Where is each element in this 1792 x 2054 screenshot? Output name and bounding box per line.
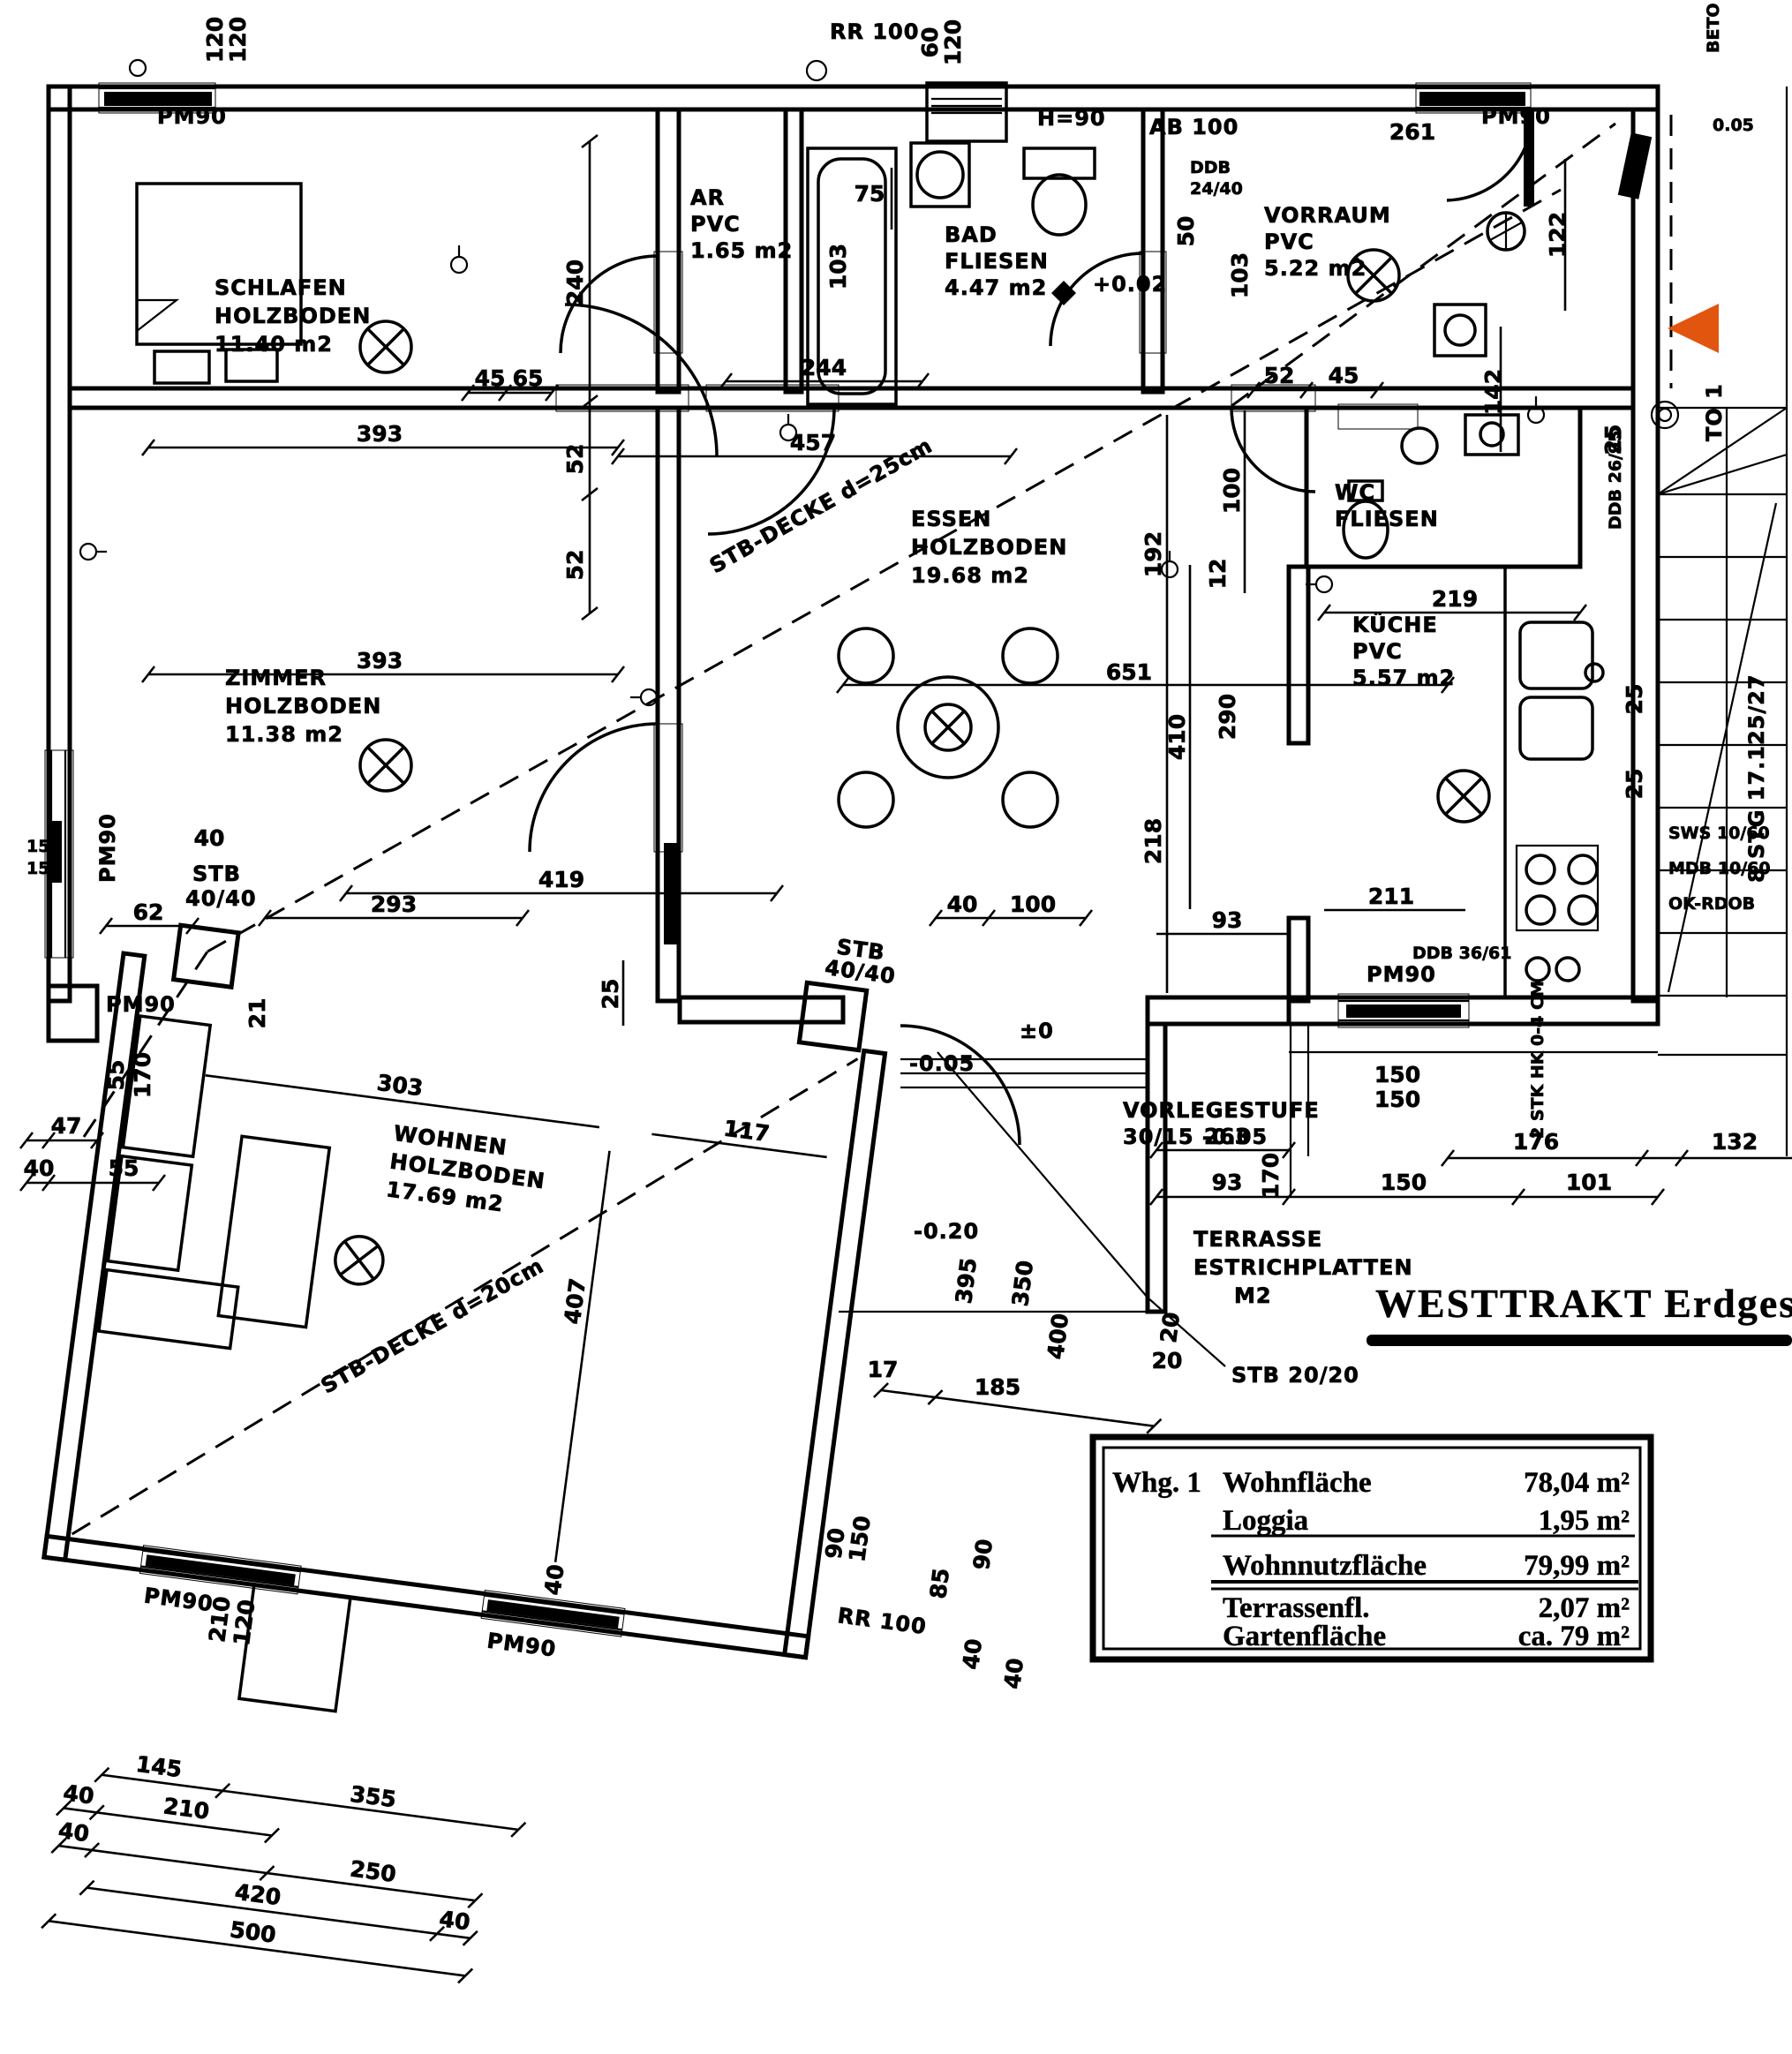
fixtures-kitchen [1505,567,1603,996]
dim-text: 500 [229,1916,278,1948]
sofa [99,1270,238,1349]
dim-text: 101 [1566,1170,1612,1195]
dim-text: 244 [801,355,847,380]
concrete-column [174,925,239,987]
room-area: M2 [1234,1283,1272,1308]
room-area: 4.47 m2 [945,275,1047,300]
dim-text: 410 [1164,714,1190,760]
hall-door-arc [565,305,717,456]
level-note: -0.20 [914,1219,979,1244]
dim-text: 25 [1622,769,1647,800]
step-note: 30/15 -0.05 [1123,1125,1268,1149]
level-note: ±0 [1020,1019,1054,1043]
nightstand [154,351,209,383]
table-row-label: Loggia [1223,1505,1308,1537]
dim-text: 150 [1381,1170,1427,1195]
dim-text: 407 [560,1276,591,1326]
dim-text: 52 [562,550,588,581]
beam-note: 24/40 [1190,179,1243,199]
dim-text: 192 [1141,531,1166,577]
title-block: WESTTRAKT Erdgescho [1367,1281,1792,1346]
dim-text: 103 [1227,252,1253,298]
dim-text: 93 [1212,1170,1243,1195]
dim-text: 40 [438,1906,471,1935]
dim-text: 420 [233,1879,282,1911]
dim-text: 651 [1106,659,1152,685]
light-icon [360,321,411,372]
chair [1003,628,1058,683]
room-floor: PVC [1264,229,1314,254]
dim-text: 350 [1007,1259,1038,1307]
pipe-note: RR 100 [830,19,919,44]
dim-text: 150 [844,1515,876,1564]
dim-text: 261 [1389,119,1435,145]
stair-note: 8 STG 17.125/27 [1744,673,1769,883]
height-note: H=90 [1037,106,1106,131]
floor-plan-drawing: WOHNEN HOLZBODEN 17.69 m2 STB-DECKE d=20… [0,0,1792,2054]
dim-text: 120 [940,19,966,65]
dim-text: 55 [103,1060,129,1091]
room-area: 19.68 m2 [911,563,1029,588]
duct-note: AB 100 [1149,115,1239,139]
table-row-value: 79,99 m² [1524,1550,1630,1582]
dim-text: 250 [349,1856,398,1888]
beam-note: DDB 36/61 [1412,944,1511,963]
dim-text: 150 [26,837,62,856]
window-note: PM90 [1481,104,1551,129]
dim-text: 395 [951,1256,982,1305]
dim-text: 60 [917,27,943,58]
dim-text: 400 [1043,1312,1073,1360]
door-leaf [1618,132,1652,199]
room-area: 5.57 m2 [1352,666,1455,690]
column-note: STB 20/20 [1231,1363,1359,1388]
beam-note: DDB 26/95 [1606,431,1625,530]
dim-text: 103 [825,244,851,290]
rain-pipe-icon [807,61,826,80]
room-floor: HOLZBODEN [911,535,1067,560]
coffee-table [218,1136,329,1327]
interior-walls [70,109,1633,1001]
table-unit: Whg. 1 [1112,1467,1201,1499]
window-note: PM90 [1367,962,1436,987]
dim-text: 45 [475,365,506,391]
light-icon [1438,771,1489,822]
sink-basin [1520,622,1592,688]
dim-text: 150 [26,859,62,878]
floor-plan-sheet: WOHNEN HOLZBODEN 17.69 m2 STB-DECKE d=20… [0,0,1792,2054]
dimension-chains-bottom: 145 355 40 210 40 250 420 40 500 [41,1742,528,1989]
wc-bowl [1033,175,1086,235]
room-floor: HOLZBODEN [225,694,381,719]
dim-text: 75 [855,181,885,207]
room-area: 5.22 m2 [1264,256,1367,281]
dim-text: 45 [1329,363,1359,388]
table-row-label: Gartenfläche [1223,1621,1386,1652]
level-note: -0.05 [909,1051,975,1076]
pipe-note: RR 100 [836,1603,928,1639]
window-note: PM90 [142,1583,215,1616]
dim-text: 290 [1215,694,1240,740]
dim-text: 150 [1374,1087,1420,1112]
room-label: ESSEN [911,507,991,531]
dim-text: 25 [1622,684,1647,715]
washing-machine [1434,305,1486,356]
table-row-label: Wohnnutzfläche [1223,1550,1427,1582]
dim-text: 40 [62,1779,95,1809]
dim-text: 145 [134,1751,184,1783]
sink-basin [1520,697,1592,759]
dim-text: 62 [133,899,164,925]
window-note: PM90 [95,813,120,883]
light-icon [360,740,411,791]
chimney [927,83,1006,141]
faucet-icon [1585,664,1603,681]
dim-text: 122 [1545,212,1570,258]
dim-text: 170 [130,1052,155,1098]
dim-text: 65 [513,365,544,391]
zimmer-door-arc [530,724,658,852]
level-note: +0.02 [1093,272,1167,297]
dim-text: 100 [1219,468,1245,514]
table-row-value: 2,07 m² [1539,1592,1630,1624]
dimension-lines [20,135,1792,1435]
dim-text: 211 [1368,884,1414,909]
room-label: TERRASSE [1193,1227,1322,1252]
dim-text: 40 [56,1817,90,1847]
room-area: 11.38 m2 [225,722,343,747]
dim-text: 120 [229,1598,260,1647]
dim-text: 12 [1205,559,1231,590]
legend-table: Whg. 1 Wohnfläche 78,04 m² Loggia 1,95 m… [1093,1437,1651,1659]
dim-text: 457 [790,430,836,455]
dim-text: 393 [357,648,403,673]
table-row-label: Wohnfläche [1223,1467,1372,1499]
washbasin-bowl [917,152,963,198]
column-note: 40/40 [824,955,898,989]
room-floor: PVC [690,212,741,237]
chair [839,772,893,827]
light-icon [333,1234,387,1288]
dim-text: 90 [968,1538,998,1571]
column-note: STB [192,861,241,886]
dim-text: 40 [999,1657,1028,1690]
chair [839,628,893,683]
concrete-column [799,982,866,1050]
dim-text: 40 [194,825,225,851]
table-row-value: 1,95 m² [1539,1505,1630,1537]
column-note: 40/40 [185,886,257,911]
dim-text: 17 [868,1357,899,1382]
dim-text: 47 [51,1113,82,1139]
material-note: BETO [1704,3,1723,53]
light-icon [925,704,971,750]
dim-text: 21 [245,998,270,1029]
dim-text: 185 [975,1374,1020,1400]
dim-text: 393 [357,421,403,447]
doors [530,109,1652,1145]
dim-text: 52 [562,444,588,475]
dim-text: 40 [947,892,978,917]
dim-text: 117 [722,1116,772,1147]
step-note: VORLEGESTUFE [1123,1098,1320,1123]
dim-text: 303 [375,1070,425,1102]
dim-text: 20 [1152,1348,1183,1373]
room-label: WC [1335,480,1375,505]
room-label: KÜCHE [1352,611,1438,637]
room-label: AR [690,185,725,210]
dim-text: 120 [202,17,228,63]
dim-text: 20 [1156,1311,1185,1344]
dim-text: 40 [958,1637,987,1671]
room-area: 1.65 m2 [690,238,793,263]
table-row-label: Terrassenfl. [1223,1592,1370,1624]
window-note: PM90 [486,1629,558,1662]
table-row-value: ca. 79 m² [1518,1621,1630,1652]
title-underline [1367,1335,1792,1346]
dim-text: 25 [598,979,623,1010]
dim-text: 218 [1141,818,1166,864]
dim-text: 93 [1212,907,1243,933]
orange-arrow-marker [1668,304,1719,353]
sill-note: OK-RDOB [1668,894,1755,914]
dim-text: 240 [562,260,588,305]
room-area: 11.40 m2 [215,332,333,357]
room-label: SCHLAFEN [215,275,347,300]
radiator-note: 2 STK HK 0-4 CM [1528,981,1547,1139]
dim-text: 419 [538,867,584,892]
dim-text: 132 [1712,1129,1758,1155]
room-label: BAD [945,222,998,247]
table-row-value: 78,04 m² [1524,1467,1630,1499]
room-label: VORRAUM [1264,203,1391,228]
sill-note: SWS 10/60 [1668,824,1770,843]
dim-text: 150 [1374,1062,1420,1087]
corner-basin [1465,415,1518,455]
dim-text: 100 [1010,892,1056,917]
handrail-icon [1659,409,1671,421]
window-note: PM90 [157,104,227,129]
room-floor: FLIESEN [945,249,1049,274]
dim-text: 170 [1258,1153,1284,1199]
room-floor: HOLZBODEN [215,304,371,328]
room-floor: PVC [1352,639,1403,664]
dim-text: 210 [162,1793,211,1825]
room-label: ZIMMER [225,666,327,690]
dim-text: 52 [1264,363,1295,388]
wohnen-wing: WOHNEN HOLZBODEN 17.69 m2 STB-DECKE d=20… [0,842,1014,2037]
window-bar [1346,1004,1461,1018]
dim-text: 40 [539,1563,568,1597]
rain-pipe-icon [130,60,146,76]
dim-text: 293 [371,892,417,917]
dim-text: 55 [109,1155,139,1181]
level-note: 0.05 [1713,116,1754,135]
dim-text: 50 [1173,216,1199,247]
window-note: PM90 [106,992,176,1017]
dim-text: 219 [1432,586,1478,612]
room-floor: FLIESEN [1335,507,1439,531]
room-floor: ESTRICHPLATTEN [1193,1255,1413,1280]
dim-text: 120 [225,17,251,63]
dim-text: 85 [925,1567,954,1600]
boiler [1402,428,1437,463]
sheet-title: WESTTRAKT Erdgescho [1375,1281,1792,1326]
dim-text: 40 [24,1155,55,1181]
ceiling-note: STB-DECKE d=20cm [317,1253,548,1399]
beam-note: DDB [1190,158,1231,177]
door-tag: TO 1 [1702,383,1727,441]
sill-note: MDB 10/60 [1668,859,1771,878]
chair [1003,772,1058,827]
dim-text: 142 [1480,369,1506,415]
bed-fold [137,300,177,331]
